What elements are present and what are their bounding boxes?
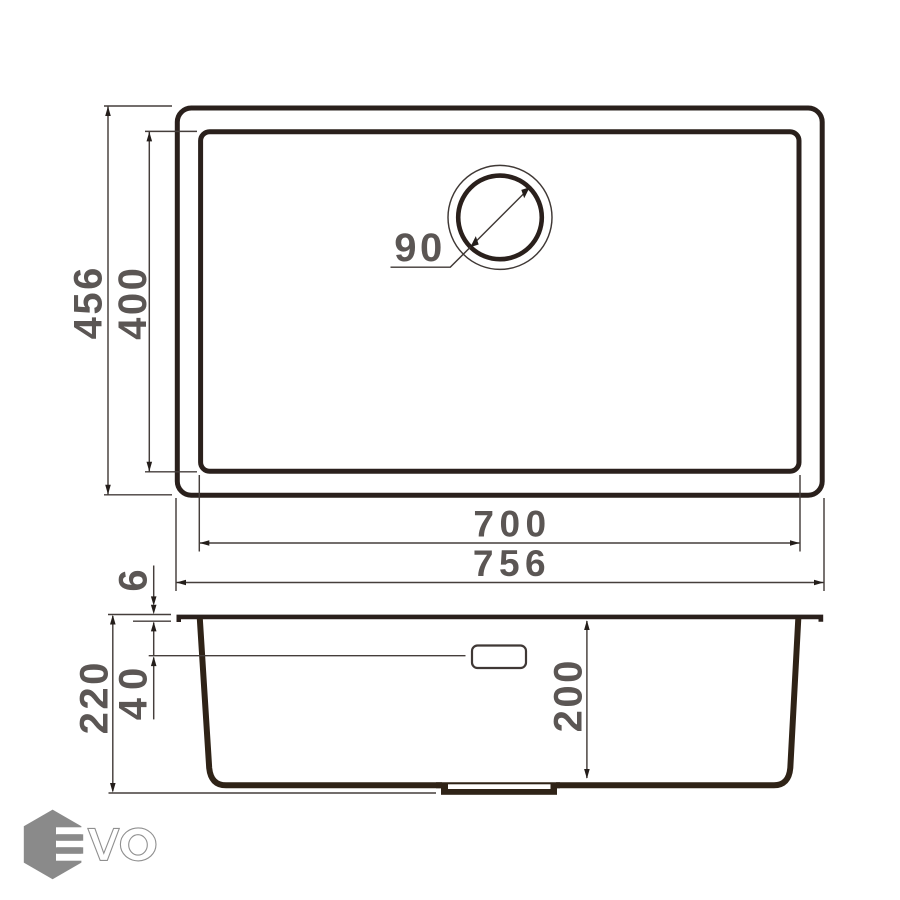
svg-text:220: 220 <box>72 660 116 734</box>
svg-text:756: 756 <box>473 543 551 584</box>
svg-text:700: 700 <box>473 504 551 545</box>
svg-text:456: 456 <box>67 265 111 339</box>
svg-text:400: 400 <box>111 266 155 340</box>
svg-text:6: 6 <box>112 569 156 591</box>
svg-text:40: 40 <box>112 660 156 721</box>
svg-text:200: 200 <box>546 658 590 732</box>
svg-text:90: 90 <box>394 226 446 270</box>
